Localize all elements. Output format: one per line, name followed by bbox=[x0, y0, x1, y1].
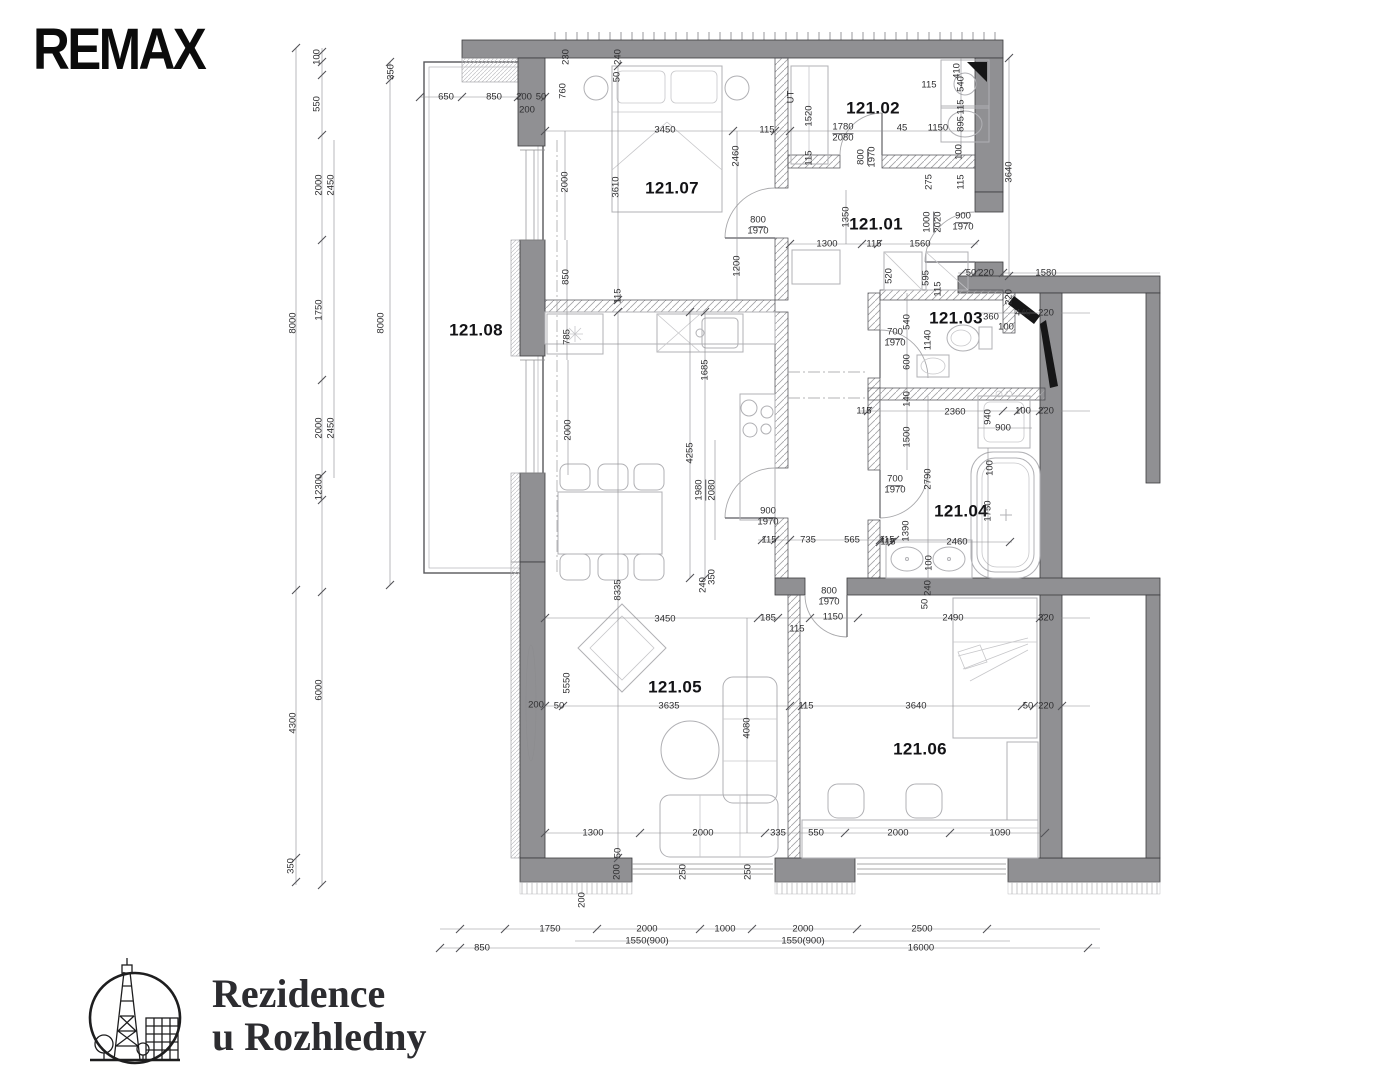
dim-label: 45 bbox=[897, 123, 908, 133]
dim-label: 250 bbox=[743, 864, 753, 880]
dim-label: 2020 bbox=[933, 211, 943, 232]
dim-label: 940 bbox=[983, 409, 993, 425]
dim-label: 5550 bbox=[562, 672, 572, 693]
dim-label: 3635 bbox=[658, 701, 679, 711]
dim-label: 1750 bbox=[983, 500, 993, 521]
project-logo: Rezidence u Rozhledny bbox=[76, 956, 427, 1074]
dim-label: 50 bbox=[966, 268, 977, 278]
dim-label: 200 bbox=[577, 892, 587, 908]
dim-label: 115 bbox=[789, 624, 804, 634]
dim-label: 735 bbox=[800, 535, 816, 545]
project-name: Rezidence u Rozhledny bbox=[212, 972, 427, 1058]
dim-label: 8000 bbox=[288, 312, 298, 333]
dim-label: 1685 bbox=[700, 359, 710, 380]
dim-label: 2000 bbox=[563, 419, 573, 440]
dim-label: 2000 bbox=[314, 174, 324, 195]
dim-label: 1750 bbox=[539, 924, 560, 934]
dim-label: 100 bbox=[985, 460, 995, 476]
dim-label: 115 bbox=[856, 406, 871, 416]
dim-label: 360 bbox=[983, 312, 999, 322]
room-label: 121.08 bbox=[449, 322, 503, 339]
room-label: 121.06 bbox=[893, 741, 947, 758]
dim-label: 2000 bbox=[792, 924, 813, 934]
dim-label: 50 bbox=[554, 701, 565, 711]
dim-label: 2460 bbox=[946, 537, 967, 547]
dimension-lines bbox=[296, 48, 1160, 948]
dim-label: UT bbox=[786, 91, 796, 104]
dim-label: 1550(900) bbox=[625, 936, 668, 946]
dim-label: 115 bbox=[761, 535, 776, 545]
room-label: 121.07 bbox=[645, 180, 699, 197]
dim-label: 1300 bbox=[582, 828, 603, 838]
dim-label: 1580 bbox=[1035, 268, 1056, 278]
dim-label: 240 bbox=[613, 49, 623, 65]
dim-label: 595 bbox=[921, 270, 931, 286]
dim-label: 540 bbox=[956, 76, 966, 92]
dim-label: 220 bbox=[1038, 406, 1054, 416]
dim-label: 185 bbox=[760, 613, 776, 623]
dim-label: 4255 bbox=[685, 442, 695, 463]
dim-label: 1150 bbox=[823, 612, 843, 622]
floorplan-page: { "branding": { "remax_text": "REMAX", "… bbox=[0, 0, 1375, 1080]
dim-label: 350 bbox=[707, 569, 717, 585]
dim-label: 115 bbox=[921, 80, 936, 90]
dim-label: 50 bbox=[612, 72, 622, 83]
dim-label: 1300 bbox=[816, 239, 837, 249]
dim-label: 2000 bbox=[636, 924, 657, 934]
centerlines bbox=[557, 140, 868, 573]
dim-label: 1520 bbox=[804, 105, 814, 126]
dim-label: 1970 bbox=[818, 597, 839, 607]
dim-label: 115 bbox=[956, 174, 966, 189]
dim-label: 100 bbox=[1015, 406, 1031, 416]
dim-label: 12300 bbox=[314, 474, 324, 500]
dim-label: 4080 bbox=[742, 717, 752, 738]
dim-label: 1550(900) bbox=[781, 936, 824, 946]
dim-label: 785 bbox=[562, 329, 572, 345]
dim-label: 115 bbox=[933, 281, 943, 296]
dim-label: 100 bbox=[924, 555, 934, 571]
dim-label: 2360 bbox=[944, 407, 965, 417]
dim-label: 565 bbox=[844, 535, 860, 545]
dim-label: 230 bbox=[561, 49, 571, 65]
dim-label: 895 bbox=[956, 116, 966, 132]
dim-label: 16000 bbox=[908, 943, 934, 953]
dim-label: 115 bbox=[804, 150, 814, 165]
dim-label: 115 bbox=[956, 99, 966, 114]
dim-label: 350 bbox=[286, 858, 296, 874]
dim-label: 200 bbox=[612, 864, 622, 880]
dim-label: 550 bbox=[312, 96, 322, 112]
dim-label: 650 bbox=[438, 92, 454, 102]
dim-label: 115 bbox=[613, 288, 623, 303]
dim-label: 240 bbox=[923, 580, 933, 596]
dim-label: 220 bbox=[1038, 701, 1054, 711]
dim-label: 760 bbox=[558, 83, 568, 99]
room-label: 121.01 bbox=[849, 216, 903, 233]
dim-label: 1970 bbox=[867, 146, 877, 167]
dim-label: 850 bbox=[474, 943, 490, 953]
project-name-line1: Rezidence bbox=[212, 972, 427, 1015]
dim-label: 140 bbox=[902, 391, 912, 407]
dim-label: 1970 bbox=[884, 338, 905, 348]
dim-label: 1970 bbox=[757, 517, 778, 527]
dim-label: 1970 bbox=[952, 222, 973, 232]
dim-label: 200 bbox=[519, 105, 535, 115]
dim-label: 1970 bbox=[747, 226, 768, 236]
dim-label: 2000 bbox=[314, 417, 324, 438]
dim-label: 1350 bbox=[841, 206, 851, 227]
dim-label: 250 bbox=[678, 864, 688, 880]
dim-label: 3640 bbox=[1004, 161, 1014, 182]
dim-label: 8335 bbox=[613, 579, 623, 600]
dim-label: 2080 bbox=[832, 133, 853, 143]
dim-label: 2790 bbox=[923, 468, 933, 489]
dim-label: 1090 bbox=[989, 828, 1010, 838]
dim-label: 350 bbox=[386, 64, 396, 80]
room-label: 121.03 bbox=[929, 310, 983, 327]
dim-label: 4300 bbox=[288, 712, 298, 733]
dim-label: 2080 bbox=[707, 479, 717, 500]
dim-label: 440 bbox=[1015, 308, 1031, 318]
dim-label: 115 bbox=[798, 701, 813, 711]
dim-label: 1970 bbox=[884, 485, 905, 495]
dim-label: 220 bbox=[1004, 289, 1014, 305]
project-name-line2: u Rozhledny bbox=[212, 1015, 427, 1058]
dim-label: 550 bbox=[808, 828, 824, 838]
dim-label: 320 bbox=[1038, 613, 1054, 623]
dim-label: 220 bbox=[1038, 308, 1054, 318]
dim-label: 1560 bbox=[909, 239, 930, 249]
dim-label: 2450 bbox=[326, 174, 336, 195]
dim-label: 335 bbox=[770, 828, 786, 838]
doors bbox=[725, 113, 975, 637]
dim-label: 2000 bbox=[560, 171, 570, 192]
dim-label: 1500 bbox=[902, 426, 912, 447]
dim-label: 275 bbox=[924, 174, 934, 190]
dim-label: 6000 bbox=[314, 679, 324, 700]
dim-label: 1750 bbox=[314, 299, 324, 320]
dim-label: 100 bbox=[954, 144, 964, 160]
dim-label: 2460 bbox=[731, 145, 741, 166]
dim-label: 1140 bbox=[923, 330, 933, 350]
room-label: 121.04 bbox=[934, 503, 988, 520]
dim-label: 2490 bbox=[942, 613, 963, 623]
dim-label: 50 bbox=[613, 848, 623, 859]
dim-label: 100 bbox=[998, 322, 1014, 332]
dim-label: 2000 bbox=[692, 828, 713, 838]
floor-plan bbox=[0, 0, 1375, 1080]
dim-label: 115 bbox=[866, 239, 881, 249]
dim-label: 200 bbox=[528, 700, 544, 710]
dim-label: 850 bbox=[486, 92, 502, 102]
dim-label: 540 bbox=[902, 314, 912, 330]
dim-label: 115 bbox=[879, 535, 894, 545]
dim-label: 520 bbox=[884, 268, 894, 284]
dim-label: 220 bbox=[978, 268, 994, 278]
dim-label: 3450 bbox=[654, 125, 675, 135]
dim-label: 1390 bbox=[901, 520, 911, 541]
dim-label: 8000 bbox=[376, 312, 386, 333]
remax-logo: REMAX bbox=[33, 16, 204, 83]
dim-label: 1980 bbox=[694, 479, 706, 500]
dim-label: 600 bbox=[902, 354, 912, 370]
dim-label: 1200 bbox=[732, 255, 742, 276]
dim-label: 115 bbox=[759, 125, 774, 135]
room-label: 121.05 bbox=[648, 679, 702, 696]
room-label: 121.02 bbox=[846, 100, 900, 117]
dim-label: 50 bbox=[536, 92, 547, 102]
dim-label: 50 bbox=[1023, 701, 1034, 711]
dim-label: 2500 bbox=[911, 924, 932, 934]
dim-label: 3610 bbox=[611, 176, 621, 197]
dim-label: 2450 bbox=[326, 417, 336, 438]
dim-label: 3640 bbox=[905, 701, 926, 711]
dim-label: 200 bbox=[516, 92, 532, 102]
dim-label: 3450 bbox=[654, 614, 675, 624]
dim-label: 2000 bbox=[887, 828, 908, 838]
dim-label: 100 bbox=[312, 49, 322, 65]
dim-label: 1150 bbox=[928, 123, 948, 133]
dim-label: 900 bbox=[995, 423, 1011, 433]
dim-label: 850 bbox=[561, 269, 571, 285]
tower-icon bbox=[76, 956, 194, 1074]
dim-label: 1000 bbox=[714, 924, 735, 934]
dim-label: 50 bbox=[920, 599, 930, 610]
